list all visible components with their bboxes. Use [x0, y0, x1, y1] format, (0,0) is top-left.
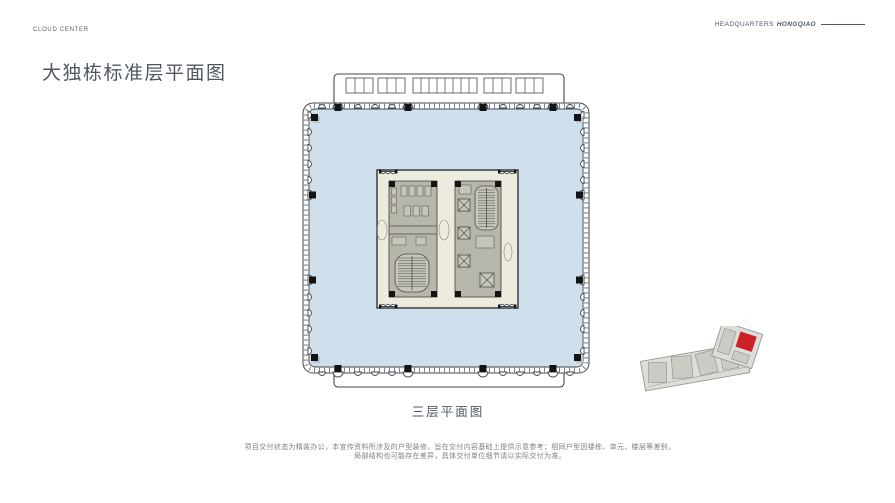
header-right-label: HEADQUARTERS [715, 21, 774, 28]
stairwell [395, 254, 429, 292]
page-title: 大独栋标准层平面图 [42, 58, 227, 85]
header-divider-line [821, 24, 865, 25]
disclaimer-line-2: 局部结构也可能存在差异，具体交付单位细节请以实际交付为准。 [60, 452, 860, 461]
disclaimer: 项目交付状态为精装办公，本宣传资料所涉及的户型装修，旨在交付内容基础上提供示意参… [60, 443, 860, 461]
core-block-elevators [455, 181, 501, 297]
elevator-shaft [458, 227, 470, 239]
floor-plan-drawing [278, 58, 618, 394]
site-locator-map [640, 326, 775, 398]
building-core [377, 170, 518, 309]
disclaimer-line-1: 项目交付状态为精装办公，本宣传资料所涉及的户型装修，旨在交付内容基础上提供示意参… [60, 443, 860, 452]
stairwell [475, 186, 498, 230]
header-right-label-italic: HONGQIAO [777, 21, 816, 28]
elevator-shaft [458, 255, 470, 267]
slide-page: { "header": { "brand": "CLOUD CENTER", "… [0, 0, 895, 503]
elevator-shaft [458, 199, 470, 211]
brand-label: CLOUD CENTER [33, 27, 89, 33]
plan-caption: 三层平面图 [278, 401, 618, 420]
header-right: HEADQUARTERS HONGQIAO [715, 21, 865, 28]
elevator-shaft [480, 273, 494, 287]
core-block-restrooms [389, 181, 437, 297]
